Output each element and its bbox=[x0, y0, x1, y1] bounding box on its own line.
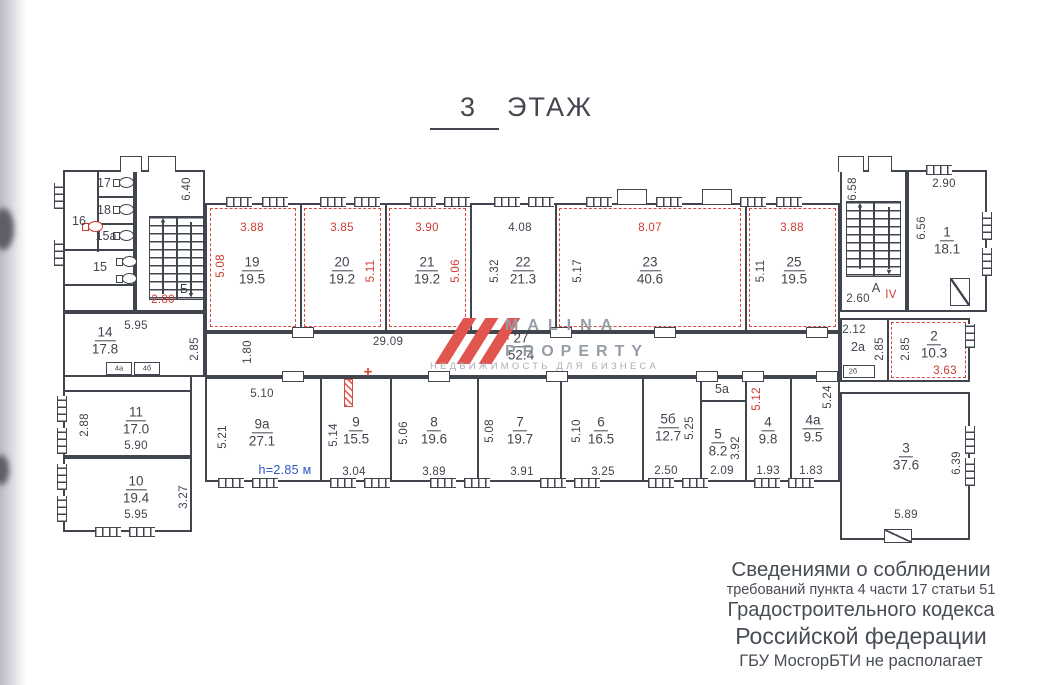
room-14-label: 1417.8 bbox=[92, 324, 118, 357]
room-21-depth-dim: 5.06 bbox=[450, 259, 462, 283]
window-symbol bbox=[740, 197, 766, 207]
room-3-width-dim: 5.89 bbox=[894, 509, 918, 521]
window-symbol bbox=[262, 197, 288, 207]
room-22-label: 2221.3 bbox=[510, 254, 536, 287]
room-5a-label: 5а bbox=[715, 382, 729, 396]
red-hatch-mark bbox=[344, 379, 353, 407]
stair-down-arrow-icon: ▼ bbox=[187, 291, 195, 300]
window-symbol bbox=[540, 478, 566, 488]
ceiling-height-note: h=2.85 м bbox=[258, 463, 311, 477]
stair-down-arrow-icon: ▼ bbox=[885, 268, 893, 277]
room-7-width-dim: 3.91 bbox=[510, 466, 534, 478]
room-8-label: 819.6 bbox=[421, 414, 447, 447]
page-title: 3ЭТАЖ bbox=[430, 92, 593, 130]
room-5-label: 58.2 bbox=[709, 426, 728, 459]
wall-segment bbox=[745, 203, 747, 332]
window-symbol bbox=[54, 240, 64, 266]
window-symbol bbox=[574, 478, 600, 488]
wall-segment bbox=[470, 203, 472, 332]
room-4-label: 49.8 bbox=[759, 414, 778, 447]
wall-segment bbox=[390, 377, 392, 482]
window-symbol bbox=[982, 212, 992, 240]
room-15-label: 15 bbox=[93, 260, 107, 274]
room-25-width-dim: 3.88 bbox=[780, 222, 804, 234]
room-3-label: 337.6 bbox=[893, 440, 919, 473]
room-25-label: 2519.5 bbox=[781, 254, 807, 287]
room-7-label: 719.7 bbox=[507, 414, 533, 447]
window-symbol bbox=[965, 324, 975, 348]
room-10-label: 1019.4 bbox=[123, 473, 149, 506]
room-23-label: 2340.6 bbox=[637, 254, 663, 287]
window-symbol bbox=[95, 527, 121, 537]
room-8-width-dim: 3.89 bbox=[422, 466, 446, 478]
room-14-width-dim: 5.95 bbox=[124, 320, 148, 332]
window-symbol bbox=[494, 197, 520, 207]
window-symbol bbox=[648, 478, 674, 488]
window-symbol bbox=[218, 478, 244, 488]
disclaimer-line: ГБУ МосгорБТИ не располагает bbox=[693, 652, 1029, 671]
window-symbol bbox=[776, 197, 802, 207]
window-symbol bbox=[320, 197, 346, 207]
window-symbol bbox=[982, 248, 992, 276]
wall-segment bbox=[700, 377, 702, 482]
window-symbol bbox=[528, 197, 554, 207]
room-15a-label: 15а bbox=[96, 229, 117, 243]
window-symbol bbox=[57, 496, 67, 522]
wall-protrusion bbox=[702, 189, 732, 204]
room-22-depth-dim: 5.32 bbox=[489, 259, 501, 283]
stair-up-line bbox=[162, 222, 164, 294]
room-7-depth-dim: 5.08 bbox=[484, 419, 496, 443]
wall-segment bbox=[555, 203, 557, 332]
wall-segment bbox=[700, 400, 747, 402]
room-21-label: 2119.2 bbox=[414, 254, 440, 287]
room-2-depth-dim: 2.85 bbox=[900, 337, 912, 361]
wall-segment bbox=[63, 284, 135, 286]
room-9a-label: 9а27.1 bbox=[249, 416, 275, 449]
window-symbol bbox=[682, 478, 708, 488]
wall-segment bbox=[745, 377, 747, 482]
stair-up-arrow-icon: ▲ bbox=[856, 201, 864, 210]
window-symbol bbox=[926, 165, 952, 175]
door-opening bbox=[292, 327, 314, 338]
room-4a-label: 4а9.5 bbox=[802, 412, 823, 445]
room-11-label: 1117.0 bbox=[123, 404, 149, 437]
window-symbol bbox=[965, 426, 975, 454]
wall-segment bbox=[790, 377, 792, 482]
room-2a-width-dim: 2.12 bbox=[842, 324, 866, 336]
room-6-label: 616.5 bbox=[588, 414, 614, 447]
wall-protrusion bbox=[120, 156, 142, 172]
door-opening bbox=[428, 371, 450, 382]
room-16-label: 16 bbox=[72, 214, 86, 228]
wall-segment bbox=[300, 203, 302, 332]
room-10-width-dim: 5.95 bbox=[124, 509, 148, 521]
window-symbol bbox=[129, 527, 155, 537]
room-5-width-dim: 2.09 bbox=[710, 465, 734, 477]
window-symbol bbox=[226, 197, 252, 207]
closet-label: 4а bbox=[115, 364, 123, 373]
room-20-label: 2019.2 bbox=[329, 254, 355, 287]
room-4a-depth-dim: 5.24 bbox=[822, 385, 834, 409]
watermark-tagline: НЕДВИЖИМОСТЬ ДЛЯ БИЗНЕСА bbox=[430, 361, 659, 372]
closet-label: 2б bbox=[849, 367, 857, 376]
room-19-depth-dim: 5.08 bbox=[215, 254, 227, 278]
stair-up-arrow-icon: ▲ bbox=[159, 216, 167, 225]
disclaimer-line: Российской федерации bbox=[693, 623, 1029, 650]
window-symbol bbox=[788, 478, 814, 488]
room-1-width-dim: 2.90 bbox=[932, 178, 956, 190]
stair-a-width-dim: 2.60 bbox=[846, 293, 870, 305]
wall-protrusion bbox=[148, 156, 176, 172]
wall-segment bbox=[385, 203, 387, 332]
closet-label: 4б bbox=[143, 364, 151, 373]
stair-b-red-dim: 2.80 bbox=[151, 294, 175, 306]
toilet-icon bbox=[122, 256, 137, 267]
disclaimer-line: Градостроительного кодекса bbox=[693, 599, 1029, 623]
window-symbol bbox=[57, 464, 67, 490]
window-symbol bbox=[656, 197, 682, 207]
window-symbol bbox=[410, 197, 436, 207]
room-11-width-dim: 5.90 bbox=[124, 440, 148, 452]
door-opening bbox=[546, 371, 568, 382]
corridor-width-dim: 1.80 bbox=[242, 340, 254, 364]
room-9a-width-dim: 5.10 bbox=[250, 388, 274, 400]
stair-up-line bbox=[859, 207, 861, 269]
door-opening bbox=[654, 327, 676, 338]
door-opening bbox=[742, 371, 764, 382]
bti-disclaimer: Сведениями о соблюдении требований пункт… bbox=[693, 558, 1029, 671]
disclaimer-line: Сведениями о соблюдении bbox=[693, 558, 1029, 582]
door-opening bbox=[806, 327, 828, 338]
stair-down-line bbox=[888, 207, 890, 269]
room-25-depth-dim: 5.11 bbox=[755, 260, 767, 283]
room-23-depth-dim: 5.17 bbox=[572, 259, 584, 283]
wall-segment bbox=[63, 249, 135, 251]
disclaimer-line: требований пункта 4 части 17 статьи 51 bbox=[693, 582, 1029, 599]
room-9a-depth-dim: 5.21 bbox=[217, 425, 229, 449]
room-9-depth-dim: 5.14 bbox=[328, 423, 340, 447]
window-symbol bbox=[364, 478, 390, 488]
room-20-depth-dim: 5.11 bbox=[365, 260, 377, 283]
wall-protrusion bbox=[838, 156, 864, 172]
wall-segment bbox=[642, 377, 644, 482]
toilet-icon bbox=[122, 273, 137, 284]
stair-a-height-dim: 6.58 bbox=[847, 177, 859, 201]
room-8-depth-dim: 5.06 bbox=[398, 421, 410, 445]
room-5b-depth-dim: 5.25 bbox=[684, 416, 696, 440]
door-opening bbox=[696, 371, 718, 382]
room-3-depth-dim: 6.39 bbox=[951, 451, 963, 475]
room-10-depth-dim: 3.27 bbox=[178, 485, 190, 509]
window-symbol bbox=[754, 478, 780, 488]
stair-a-section-number: IV bbox=[885, 289, 896, 301]
room-2a-depth-dim: 2.85 bbox=[874, 337, 886, 361]
floor-word: ЭТАЖ bbox=[499, 92, 593, 123]
stair-b-height-dim: 6.40 bbox=[181, 177, 193, 201]
window-symbol bbox=[586, 197, 612, 207]
wall-segment bbox=[97, 196, 135, 198]
wall-segment bbox=[477, 377, 479, 482]
room-20-width-dim: 3.85 bbox=[330, 222, 354, 234]
room-4a-width-dim: 1.83 bbox=[799, 465, 823, 477]
room-2-label: 210.3 bbox=[921, 328, 947, 361]
stair-b-label: Б bbox=[180, 282, 188, 296]
room-17-label: 17 bbox=[97, 176, 111, 190]
wall-segment bbox=[887, 318, 889, 382]
room-1-label: 118.1 bbox=[934, 224, 960, 257]
stair-divider bbox=[176, 216, 178, 300]
red-cross-mark: + bbox=[364, 364, 373, 381]
corridor-length-dim: 29.09 bbox=[373, 336, 403, 348]
stair-a-label: А bbox=[872, 281, 880, 295]
door-leaf bbox=[950, 278, 970, 306]
window-symbol bbox=[57, 428, 67, 454]
room-5b-width-dim: 2.50 bbox=[654, 465, 678, 477]
window-symbol bbox=[330, 478, 356, 488]
room-19-label: 1919.5 bbox=[239, 254, 265, 287]
stair-down-line bbox=[190, 222, 192, 294]
room-19-width-dim: 3.88 bbox=[240, 222, 264, 234]
watermark-brand-line2: PROPERTY bbox=[505, 343, 649, 361]
room-22-width-dim: 4.08 bbox=[508, 222, 532, 234]
room-2a-label: 2а bbox=[851, 340, 865, 354]
room-5b-label: 5б12.7 bbox=[655, 411, 681, 444]
door-opening bbox=[282, 371, 304, 382]
room-23-width-dim: 8.07 bbox=[638, 222, 662, 234]
toilet-icon bbox=[119, 204, 134, 215]
room-1-depth-dim: 6.56 bbox=[916, 216, 928, 240]
room-2-width-dim: 3.63 bbox=[933, 365, 957, 377]
window-symbol bbox=[54, 183, 64, 209]
wall-segment bbox=[560, 377, 562, 482]
wall-segment bbox=[190, 377, 192, 390]
toilet-icon bbox=[119, 177, 134, 188]
window-symbol bbox=[965, 458, 975, 486]
door-leaf bbox=[884, 529, 912, 543]
scan-edge-shadow bbox=[0, 0, 26, 685]
room-11-depth-dim: 2.88 bbox=[79, 413, 91, 437]
window-symbol bbox=[430, 478, 456, 488]
wall-segment bbox=[63, 377, 65, 390]
room-4-depth-dim: 5.12 bbox=[751, 387, 763, 411]
door-opening bbox=[816, 371, 838, 382]
window-symbol bbox=[354, 197, 380, 207]
wall-segment bbox=[320, 377, 322, 482]
floor-plan-page: 3ЭТАЖ bbox=[0, 0, 1041, 685]
window-symbol bbox=[464, 478, 490, 488]
room-6-width-dim: 3.25 bbox=[591, 466, 615, 478]
toilet-icon bbox=[119, 230, 134, 241]
wall-protrusion bbox=[868, 156, 892, 172]
window-symbol bbox=[252, 478, 278, 488]
room-21-width-dim: 3.90 bbox=[415, 222, 439, 234]
window-symbol bbox=[57, 396, 67, 422]
room-5-depth-dim: 3.92 bbox=[730, 436, 742, 460]
floor-number: 3 bbox=[430, 92, 499, 130]
room-9-width-dim: 3.04 bbox=[342, 466, 366, 478]
stair-divider bbox=[873, 201, 875, 277]
wall-protrusion bbox=[617, 189, 647, 204]
watermark-brand-line1: MALINA bbox=[505, 317, 621, 335]
room-4-width-dim: 1.93 bbox=[756, 465, 780, 477]
room-14-depth-dim: 2.85 bbox=[189, 337, 201, 361]
window-symbol bbox=[444, 197, 470, 207]
room-6-depth-dim: 5.10 bbox=[571, 419, 583, 443]
room-18-label: 18 bbox=[97, 203, 111, 217]
room-9-label: 915.5 bbox=[343, 414, 369, 447]
